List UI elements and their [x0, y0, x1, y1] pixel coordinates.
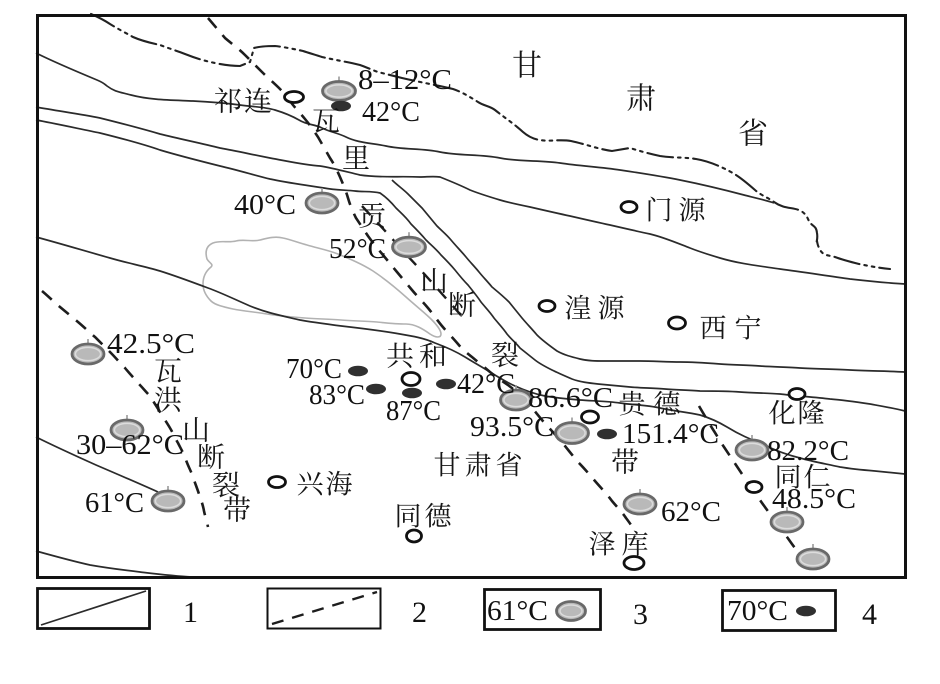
svg-text:82.2°C: 82.2°C [767, 435, 849, 467]
svg-text:61°C: 61°C [487, 595, 548, 627]
svg-text:52°C: 52°C [329, 233, 386, 265]
svg-text:83°C: 83°C [309, 379, 365, 411]
svg-text:93.5°C: 93.5°C [470, 411, 554, 443]
svg-text:42°C: 42°C [457, 368, 515, 400]
svg-text:70°C: 70°C [727, 595, 788, 627]
svg-text:62°C: 62°C [661, 496, 721, 528]
svg-text:42°C: 42°C [362, 96, 420, 128]
svg-text:3: 3 [633, 598, 648, 631]
svg-text:151.4°C: 151.4°C [622, 418, 719, 450]
svg-text:4: 4 [862, 598, 877, 631]
svg-text:40°C: 40°C [234, 189, 296, 221]
svg-text:1: 1 [183, 596, 198, 629]
svg-text:8–12°C: 8–12°C [358, 64, 452, 96]
svg-text:42.5°C: 42.5°C [107, 328, 195, 360]
svg-text:30–62°C: 30–62°C [76, 429, 184, 461]
svg-text:48.5°C: 48.5°C [772, 483, 856, 515]
svg-text:2: 2 [412, 596, 427, 629]
svg-text:61°C: 61°C [85, 487, 144, 519]
svg-text:86.6°C: 86.6°C [528, 382, 613, 414]
svg-text:87°C: 87°C [386, 395, 441, 427]
